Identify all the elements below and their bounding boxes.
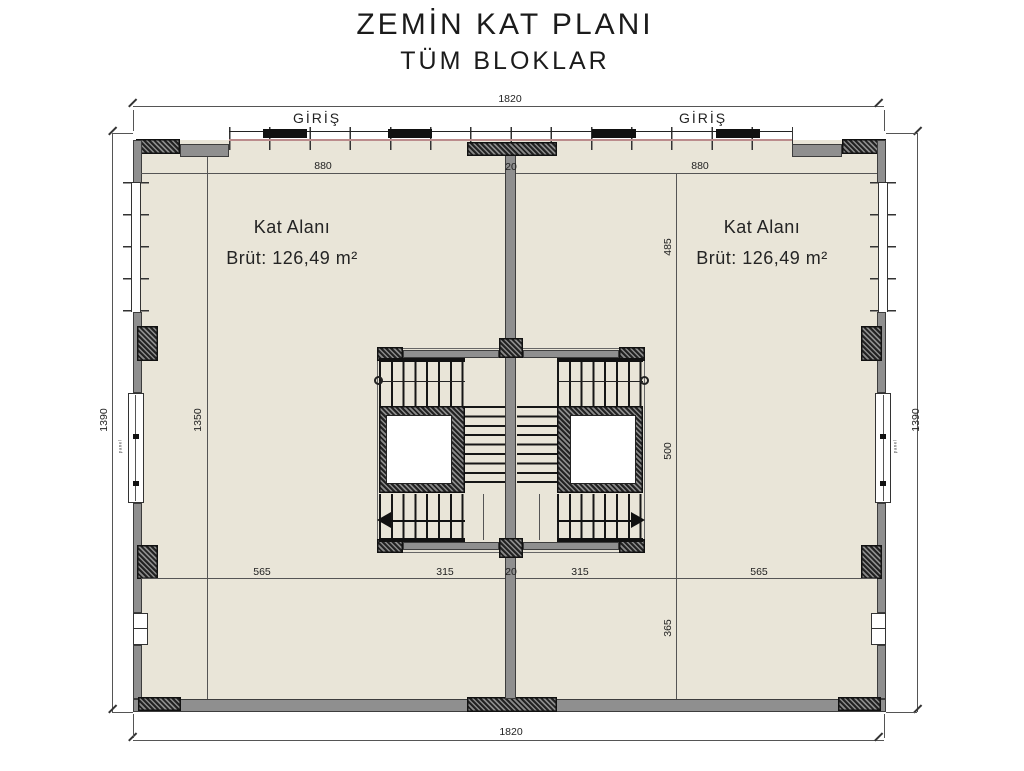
stair-flight-upper-left xyxy=(379,362,465,406)
floor-plan-drawing: ZEMİN KAT PLANI TÜM BLOKLAR 1820 1820 13… xyxy=(0,0,1024,771)
dim-label-365: 365 xyxy=(662,608,674,648)
stair-boundary-line xyxy=(483,494,484,540)
door-hinge-mark xyxy=(133,481,139,486)
area-label-left-block: Kat Alanı Brüt: 126,49 m² xyxy=(192,212,392,274)
dim-label-20-bottom: 20 xyxy=(481,566,541,578)
stair-direction-line xyxy=(557,520,638,522)
stair-edge xyxy=(557,538,643,542)
glazing-outer-line xyxy=(229,131,792,132)
stair-rail-line xyxy=(379,381,465,382)
entrance-door-leaf xyxy=(592,129,636,138)
window-divider xyxy=(872,628,885,629)
door-hinge-mark xyxy=(880,481,886,486)
window-left-lower xyxy=(133,613,148,645)
entrance-door-leaf xyxy=(716,129,760,138)
dim-line-top xyxy=(133,106,884,107)
dim-ext xyxy=(133,714,134,738)
dim-label-315-right: 315 xyxy=(550,566,610,578)
dim-ext xyxy=(884,110,885,131)
door-note-left: panel xyxy=(118,427,123,467)
wall-segment xyxy=(133,645,142,699)
stair-boundary-line xyxy=(539,494,540,540)
corner-column-bottom-right xyxy=(838,697,881,711)
door-hinge-mark xyxy=(880,434,886,439)
area-value-right: Brüt: 126,49 m² xyxy=(662,243,862,274)
stair-rail-line xyxy=(557,381,643,382)
core-wall xyxy=(523,350,619,358)
core-wall xyxy=(403,350,499,358)
core-column-center-top xyxy=(499,338,523,358)
column-top-center xyxy=(467,142,557,156)
dim-ext xyxy=(884,714,885,738)
stair-flight-upper-right xyxy=(557,362,643,406)
area-name-left: Kat Alanı xyxy=(192,212,392,243)
window-right-lower xyxy=(871,613,886,645)
entrance-label-right: GİRİŞ xyxy=(663,110,743,126)
dim-ext xyxy=(886,133,917,134)
stair-direction-line xyxy=(384,520,465,522)
stair-landing-steps-right xyxy=(517,406,557,490)
stair-landing-steps-left xyxy=(465,406,505,490)
entrance-label-left: GİRİŞ xyxy=(277,110,357,126)
dim-label-top-total: 1820 xyxy=(470,93,550,105)
dim-label-880-right: 880 xyxy=(660,160,740,172)
shaft-opening-right xyxy=(570,415,636,484)
entrance-door-leaf xyxy=(263,129,307,138)
column-right-lower xyxy=(861,545,882,579)
wall-segment xyxy=(133,140,142,183)
core-wall xyxy=(403,542,499,550)
dim-label-1350: 1350 xyxy=(192,400,204,440)
page-subtitle: TÜM BLOKLAR xyxy=(255,47,755,76)
core-column-center-bottom xyxy=(499,538,523,558)
corner-column-top-left xyxy=(136,139,180,154)
stair-rail-post xyxy=(640,376,649,385)
shaft-opening-left xyxy=(386,415,452,484)
area-label-right-block: Kat Alanı Brüt: 126,49 m² xyxy=(662,212,862,274)
dim-line-left xyxy=(112,133,113,712)
area-name-right: Kat Alanı xyxy=(662,212,862,243)
dim-label-880-left: 880 xyxy=(283,160,363,172)
dim-label-565-right: 565 xyxy=(729,566,789,578)
wall-segment xyxy=(877,140,886,183)
wall-segment xyxy=(877,645,886,699)
window-strip xyxy=(131,183,141,312)
column-right-upper xyxy=(861,326,882,361)
dim-ext xyxy=(112,712,133,713)
door-hinge-mark xyxy=(133,434,139,439)
dim-label-315-left: 315 xyxy=(415,566,475,578)
side-door-left xyxy=(128,393,144,503)
column-left-upper xyxy=(137,326,158,361)
area-value-left: Brüt: 126,49 m² xyxy=(192,243,392,274)
wall-step-top-left xyxy=(180,144,229,157)
entrance-door-leaf xyxy=(388,129,432,138)
dim-label-500: 500 xyxy=(662,431,674,471)
window-strip xyxy=(878,183,888,312)
dim-ext xyxy=(112,133,133,134)
dim-label-left-total: 1390 xyxy=(98,400,110,440)
dim-label-20-top: 20 xyxy=(491,161,531,173)
stair-flight-lower-left xyxy=(379,494,465,538)
corner-column-bottom-left xyxy=(138,697,181,711)
page-title: ZEMİN KAT PLANI xyxy=(255,8,755,42)
column-left-lower xyxy=(137,545,158,579)
stair-rail-post xyxy=(374,376,383,385)
dim-ext xyxy=(886,712,917,713)
core-wall xyxy=(523,542,619,550)
stair-direction-arrow-right xyxy=(631,512,645,528)
dim-line-bottom xyxy=(133,740,884,741)
dim-label-right-total: 1390 xyxy=(910,400,922,440)
stair-edge xyxy=(379,538,465,542)
door-note-right: panel xyxy=(893,427,898,467)
dim-label-bottom-total: 1820 xyxy=(471,726,551,738)
dim-ext xyxy=(133,110,134,131)
stair-direction-arrow-left xyxy=(377,512,391,528)
column-bottom-center xyxy=(467,697,557,712)
wall-step-top-right xyxy=(792,144,842,157)
window-divider xyxy=(134,628,147,629)
dim-label-565-left: 565 xyxy=(232,566,292,578)
facade-accent-line xyxy=(229,139,792,141)
